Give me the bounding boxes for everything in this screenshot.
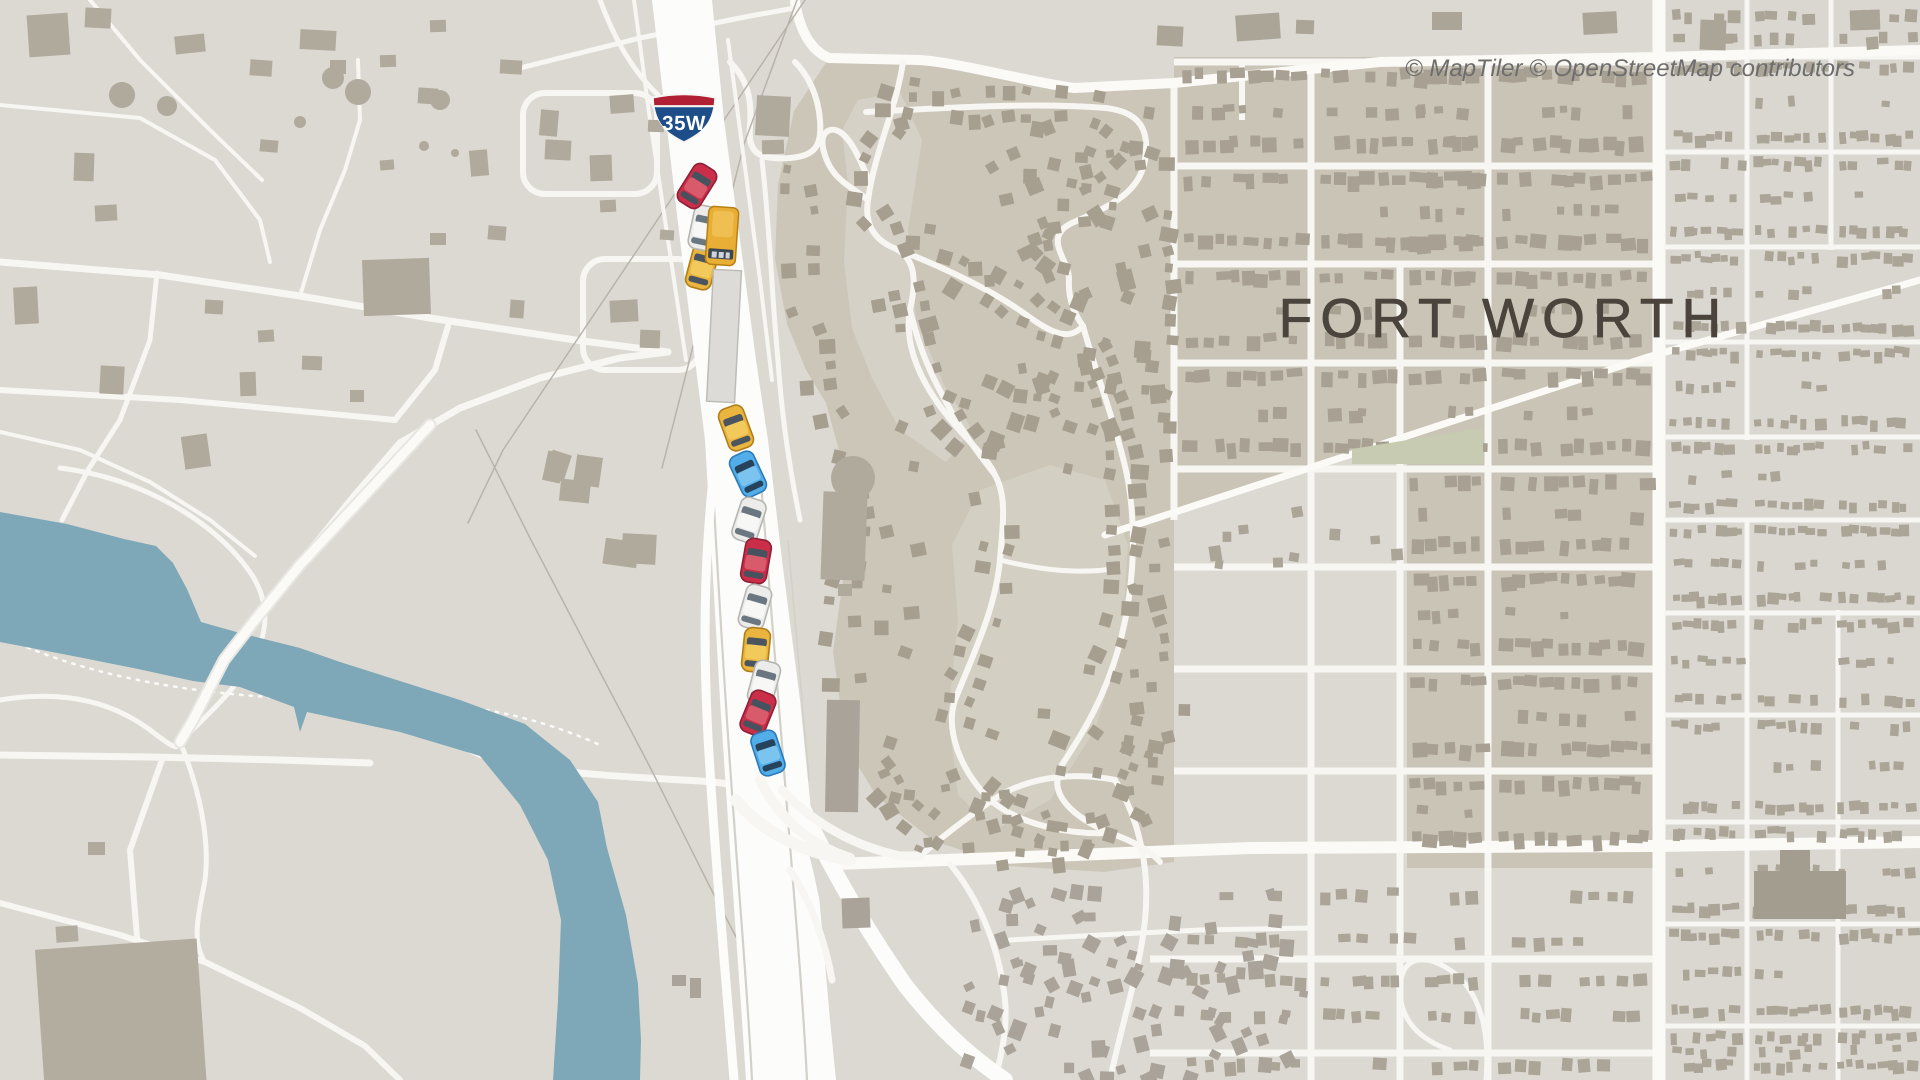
svg-text:FORT WORTH: FORT WORTH [1279, 287, 1730, 349]
svg-text:© MapTiler © OpenStreetMap con: © MapTiler © OpenStreetMap contributors [1405, 55, 1855, 82]
svg-text:35W: 35W [662, 112, 706, 135]
